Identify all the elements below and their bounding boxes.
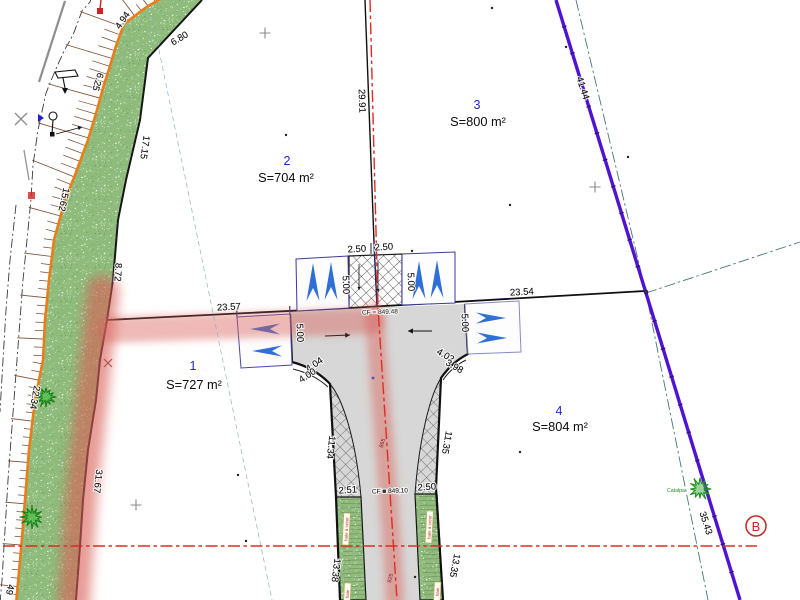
svg-text:23.54: 23.54	[510, 286, 534, 298]
svg-text:S=704 m²: S=704 m²	[258, 170, 315, 185]
svg-text:2.50: 2.50	[374, 242, 393, 254]
svg-text:S=800 m²: S=800 m²	[450, 114, 507, 129]
svg-text:B: B	[752, 519, 761, 534]
svg-text:5.00: 5.00	[459, 313, 471, 332]
svg-text:2.51: 2.51	[338, 484, 357, 496]
svg-text:S=727 m²: S=727 m²	[166, 377, 223, 392]
svg-text:2.50: 2.50	[417, 481, 436, 493]
svg-text:5.00: 5.00	[340, 275, 352, 294]
svg-text:29.91: 29.91	[356, 89, 368, 113]
svg-text:4: 4	[556, 404, 563, 418]
svg-text:8.72: 8.72	[111, 263, 123, 282]
svg-text:23.57: 23.57	[217, 301, 241, 313]
svg-text:haie: haie	[435, 587, 440, 596]
svg-text:S=804 m²: S=804 m²	[532, 419, 589, 434]
svg-text:5.00: 5.00	[294, 323, 306, 342]
svg-text:Catalpa: Catalpa	[667, 488, 685, 494]
svg-text:1: 1	[190, 359, 197, 373]
svg-text:49: 49	[3, 583, 16, 596]
svg-text:5.00: 5.00	[405, 272, 417, 291]
svg-text:2: 2	[284, 154, 291, 168]
svg-text:CF ■ 849,10: CF ■ 849,10	[372, 487, 409, 495]
svg-text:CF = 849.48: CF = 849.48	[362, 308, 399, 316]
svg-text:3: 3	[474, 98, 481, 112]
svg-text:haie: haie	[345, 589, 350, 598]
svg-text:2.50: 2.50	[347, 244, 366, 256]
